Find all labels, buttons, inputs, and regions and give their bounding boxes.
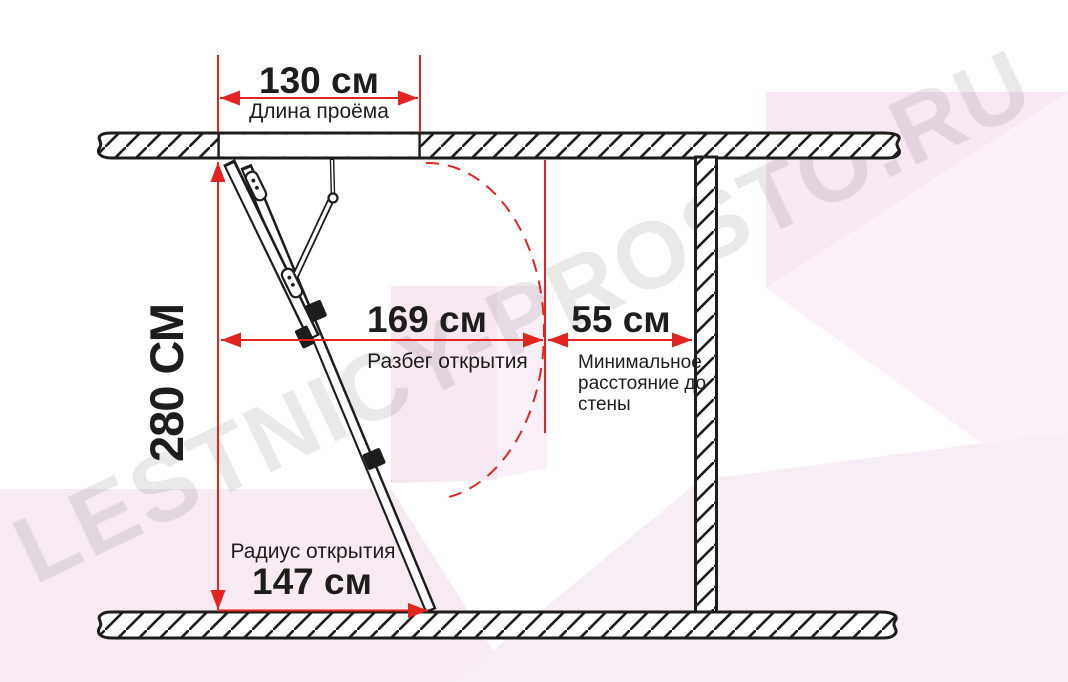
- opening-radius-value: 147 см: [212, 561, 412, 603]
- ceiling-opening: [219, 133, 420, 158]
- opening-length-value: 130 см: [218, 60, 420, 102]
- ceiling-structure: [99, 133, 900, 158]
- wall-distance-label: Минимальное расстояние до стены: [578, 352, 713, 415]
- opening-span-label: Разбег открытия: [345, 350, 550, 374]
- attic-ladder-dimension-diagram: LESTNICY-PROSTO.RU: [0, 0, 1068, 682]
- ladder-strut: [293, 158, 338, 281]
- opening-span-value: 169 см: [327, 299, 527, 341]
- ladder-hatch-door: [229, 162, 314, 338]
- strut-joint: [329, 194, 338, 203]
- floor-structure: [99, 612, 897, 638]
- height-value: 280 СМ: [139, 258, 193, 508]
- opening-length-label: Длина проёма: [218, 100, 420, 124]
- wall-distance-value: 55 см: [523, 299, 719, 341]
